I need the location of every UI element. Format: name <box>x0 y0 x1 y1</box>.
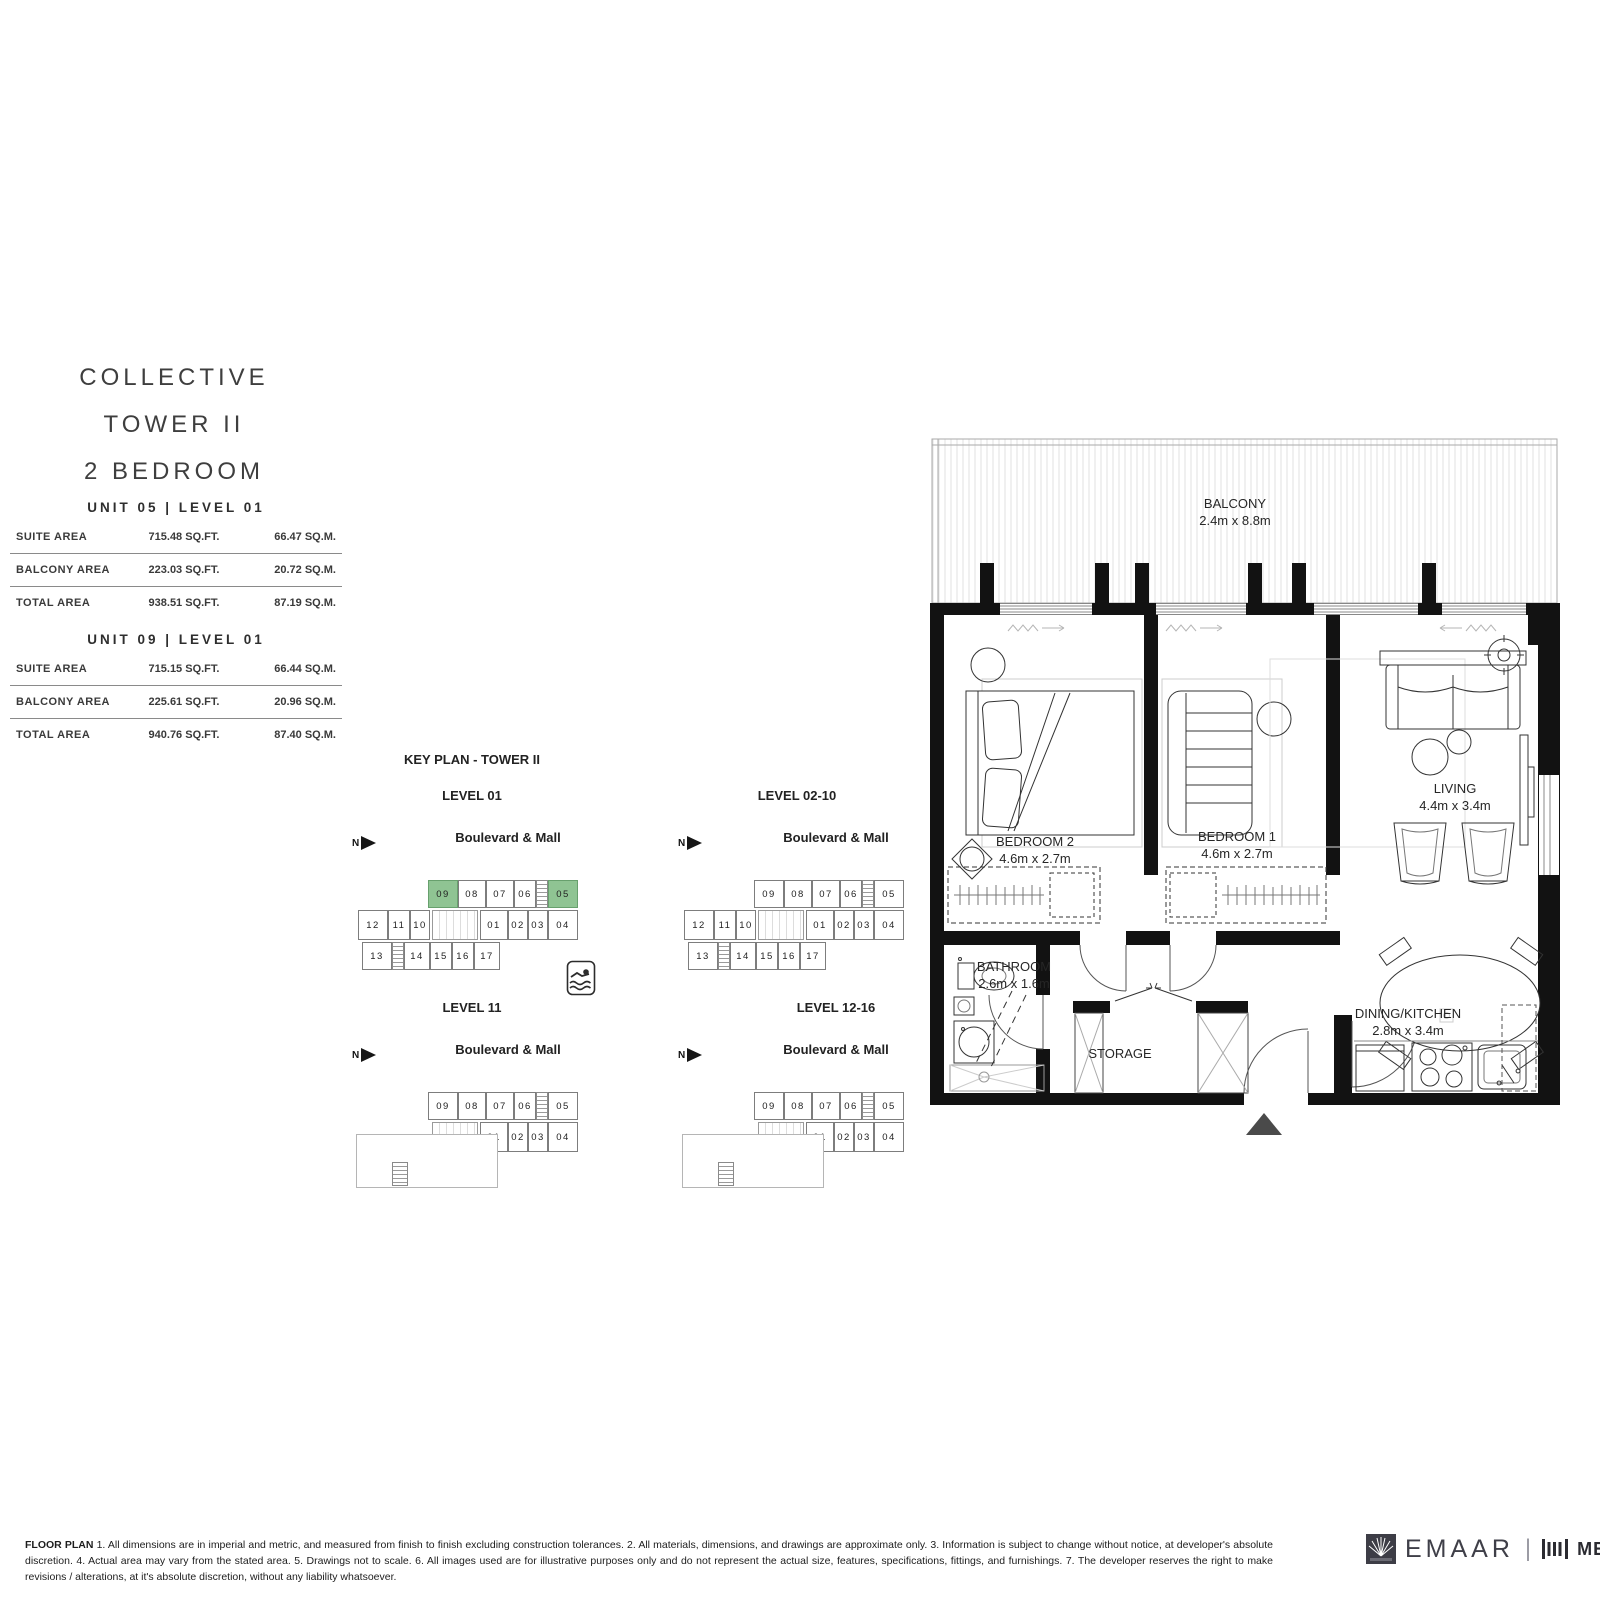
table-row: BALCONY AREA 225.61 SQ.FT. 20.96 SQ.M. <box>10 686 342 719</box>
keyplan-unit-16: 16 <box>778 942 800 970</box>
area-sqm: 20.72 SQ.M. <box>244 564 336 576</box>
keyplan-unit-05: 05 <box>874 1092 904 1120</box>
emaar-wordmark: EMAAR <box>1405 1535 1514 1564</box>
living-label: LIVING 4.4m x 3.4m <box>1419 780 1491 814</box>
keyplan-unit-03: 03 <box>854 910 874 940</box>
keyplan-unit-07: 07 <box>486 1092 514 1120</box>
area-row-label: TOTAL AREA <box>16 729 124 741</box>
keyplan-block <box>432 910 478 940</box>
living-furniture <box>1270 635 1534 884</box>
keyplan-unit-08: 08 <box>458 1092 486 1120</box>
keyplan-unit-05: 05 <box>548 1092 578 1120</box>
level-01-label: LEVEL 01 <box>352 788 592 803</box>
keyplan-unit-09: 09 <box>428 880 458 908</box>
entrance-arrow-icon <box>1246 1113 1282 1135</box>
north-arrow-icon: N <box>678 836 702 850</box>
keyplan-block <box>682 1134 824 1188</box>
keyplan-unit-16: 16 <box>452 942 474 970</box>
keyplan-unit-15: 15 <box>430 942 452 970</box>
keyplan-block <box>536 880 548 908</box>
street-label: Boulevard & Mall <box>388 1042 628 1057</box>
bathroom-label: BATHROOM 2.6m x 1.6m <box>977 958 1051 992</box>
brand-logos: EMAAR | MERAAS <box>1366 1534 1600 1564</box>
keyplan-unit-06: 06 <box>840 1092 862 1120</box>
street-label: Boulevard & Mall <box>716 1042 956 1057</box>
keyplan-unit-05: 05 <box>548 880 578 908</box>
keyplan-block <box>862 880 874 908</box>
project-title-block: COLLECTIVE TOWER II 2 BEDROOM <box>58 364 290 505</box>
area-sqm: 87.40 SQ.M. <box>244 729 336 741</box>
area-sqft: 225.61 SQ.FT. <box>124 696 244 708</box>
keyplan-unit-11: 11 <box>388 910 410 940</box>
keyplan-unit-15: 15 <box>756 942 778 970</box>
meraas-logo-icon <box>1542 1538 1568 1560</box>
area-row-label: BALCONY AREA <box>16 696 124 708</box>
area-row-label: BALCONY AREA <box>16 564 124 576</box>
unit-type: 2 BEDROOM <box>58 458 290 486</box>
north-arrow-icon: N <box>352 836 376 850</box>
doors <box>989 945 1418 1093</box>
meraas-wordmark: MERAAS <box>1577 1539 1600 1560</box>
keyplan-unit-08: 08 <box>784 880 812 908</box>
level-12-16-label: LEVEL 12-16 <box>716 1000 956 1015</box>
keyplan-level-02-10: 0908070605121110010203041314151617 <box>678 874 910 988</box>
keyplan-unit-09: 09 <box>754 1092 784 1120</box>
keyplan-unit-04: 04 <box>874 1122 904 1152</box>
bedroom1-furniture <box>1162 679 1291 847</box>
keyplan-unit-03: 03 <box>528 1122 548 1152</box>
keyplan-unit-06: 06 <box>514 880 536 908</box>
north-arrow-icon: N <box>352 1048 376 1062</box>
keyplan-unit-06: 06 <box>514 1092 536 1120</box>
disclaimer-label: FLOOR PLAN <box>25 1539 93 1551</box>
keyplan-block <box>862 1092 874 1120</box>
keyplan-unit-11: 11 <box>714 910 736 940</box>
keyplan-block <box>392 942 404 970</box>
floorplan-brochure-page: { "title": { "line1": "COLLECTIVE", "lin… <box>0 0 1600 1600</box>
keyplan-block <box>356 1134 498 1188</box>
keyplan-unit-14: 14 <box>404 942 430 970</box>
keyplan-block <box>758 910 804 940</box>
keyplan-block <box>392 1162 408 1186</box>
keyplan-unit-07: 07 <box>486 880 514 908</box>
unit-floorplan: BALCONY 2.4m x 8.8m BEDROOM 2 4.6m x 2.7… <box>930 435 1560 1145</box>
keyplan-level-01: 0908070605121110010203041314151617 <box>352 874 584 988</box>
keyplan-unit-08: 08 <box>458 880 486 908</box>
area-sqm: 66.47 SQ.M. <box>244 531 336 543</box>
area-sqm: 66.44 SQ.M. <box>244 663 336 675</box>
area-sqft: 938.51 SQ.FT. <box>124 597 244 609</box>
bedroom1-label: BEDROOM 1 4.6m x 2.7m <box>1198 828 1276 862</box>
keyplan-unit-07: 07 <box>812 1092 840 1120</box>
keyplan-unit-04: 04 <box>548 1122 578 1152</box>
keyplan-unit-17: 17 <box>800 942 826 970</box>
keyplan-unit-01: 01 <box>480 910 508 940</box>
keyplan-title: KEY PLAN - TOWER II <box>352 752 592 767</box>
keyplan-unit-02: 02 <box>834 1122 854 1152</box>
keyplan-unit-04: 04 <box>874 910 904 940</box>
keyplan-unit-06: 06 <box>840 880 862 908</box>
keyplan-block <box>718 1162 734 1186</box>
keyplan-unit-13: 13 <box>688 942 718 970</box>
level-02-10-label: LEVEL 02-10 <box>677 788 917 803</box>
keyplan-unit-04: 04 <box>548 910 578 940</box>
keyplan-unit-01: 01 <box>806 910 834 940</box>
area-sqft: 223.03 SQ.FT. <box>124 564 244 576</box>
bedroom2-label: BEDROOM 2 4.6m x 2.7m <box>996 833 1074 867</box>
brand-divider: | <box>1523 1535 1533 1563</box>
keyplan-unit-08: 08 <box>784 1092 812 1120</box>
area-row-label: TOTAL AREA <box>16 597 124 609</box>
keyplan-block <box>718 942 730 970</box>
keyplan-level-11: 090807060501020304 <box>352 1086 584 1200</box>
keyplan-unit-13: 13 <box>362 942 392 970</box>
keyplan-level-12-16: 090807060501020304 <box>678 1086 910 1200</box>
north-arrow-icon: N <box>678 1048 702 1062</box>
keyplan-unit-05: 05 <box>874 880 904 908</box>
area-sqm: 87.19 SQ.M. <box>244 597 336 609</box>
storage-label: STORAGE <box>1088 1045 1151 1062</box>
keyplan-unit-12: 12 <box>358 910 388 940</box>
table-row: SUITE AREA 715.15 SQ.FT. 66.44 SQ.M. <box>10 653 342 686</box>
window-marks <box>1008 625 1496 631</box>
street-label: Boulevard & Mall <box>388 830 628 845</box>
keyplan-unit-03: 03 <box>528 910 548 940</box>
table-row: TOTAL AREA 940.76 SQ.FT. 87.40 SQ.M. <box>10 719 342 751</box>
keyplan-unit-03: 03 <box>854 1122 874 1152</box>
area-sqft: 715.15 SQ.FT. <box>124 663 244 675</box>
level-11-label: LEVEL 11 <box>352 1000 592 1015</box>
floorplan-disclaimer: FLOOR PLAN 1. All dimensions are in impe… <box>25 1538 1273 1585</box>
dining-kitchen-label: DINING/KITCHEN 2.8m x 3.4m <box>1355 1005 1461 1039</box>
keyplan-unit-09: 09 <box>428 1092 458 1120</box>
disclaimer-text: 1. All dimensions are in imperial and me… <box>25 1539 1273 1583</box>
swimmer-icon <box>566 960 596 996</box>
area-sqm: 20.96 SQ.M. <box>244 696 336 708</box>
wardrobes <box>948 867 1326 923</box>
keyplan-unit-02: 02 <box>508 910 528 940</box>
keyplan-unit-02: 02 <box>834 910 854 940</box>
keyplan-unit-02: 02 <box>508 1122 528 1152</box>
project-name: COLLECTIVE <box>58 364 290 392</box>
unit-05-area-table: UNIT 05 | LEVEL 01 SUITE AREA 715.48 SQ.… <box>10 500 342 619</box>
emaar-logo-icon <box>1366 1534 1396 1564</box>
area-row-label: SUITE AREA <box>16 663 124 675</box>
table-row: TOTAL AREA 938.51 SQ.FT. 87.19 SQ.M. <box>10 587 342 619</box>
area-sqft: 715.48 SQ.FT. <box>124 531 244 543</box>
keyplan-unit-10: 10 <box>410 910 430 940</box>
keyplan-unit-14: 14 <box>730 942 756 970</box>
unit-09-header: UNIT 09 | LEVEL 01 <box>10 632 342 647</box>
table-row: BALCONY AREA 223.03 SQ.FT. 20.72 SQ.M. <box>10 554 342 587</box>
keyplan-block <box>536 1092 548 1120</box>
dining-furniture <box>1379 937 1544 1069</box>
area-row-label: SUITE AREA <box>16 531 124 543</box>
balcony-label: BALCONY 2.4m x 8.8m <box>1199 495 1271 529</box>
keyplan-unit-17: 17 <box>474 942 500 970</box>
unit-05-header: UNIT 05 | LEVEL 01 <box>10 500 342 515</box>
keyplan-unit-12: 12 <box>684 910 714 940</box>
tower-name: TOWER II <box>58 411 290 439</box>
unit-09-area-table: UNIT 09 | LEVEL 01 SUITE AREA 715.15 SQ.… <box>10 632 342 751</box>
keyplan-unit-10: 10 <box>736 910 756 940</box>
area-sqft: 940.76 SQ.FT. <box>124 729 244 741</box>
keyplan-unit-09: 09 <box>754 880 784 908</box>
keyplan-unit-07: 07 <box>812 880 840 908</box>
table-row: SUITE AREA 715.48 SQ.FT. 66.47 SQ.M. <box>10 521 342 554</box>
street-label: Boulevard & Mall <box>716 830 956 845</box>
